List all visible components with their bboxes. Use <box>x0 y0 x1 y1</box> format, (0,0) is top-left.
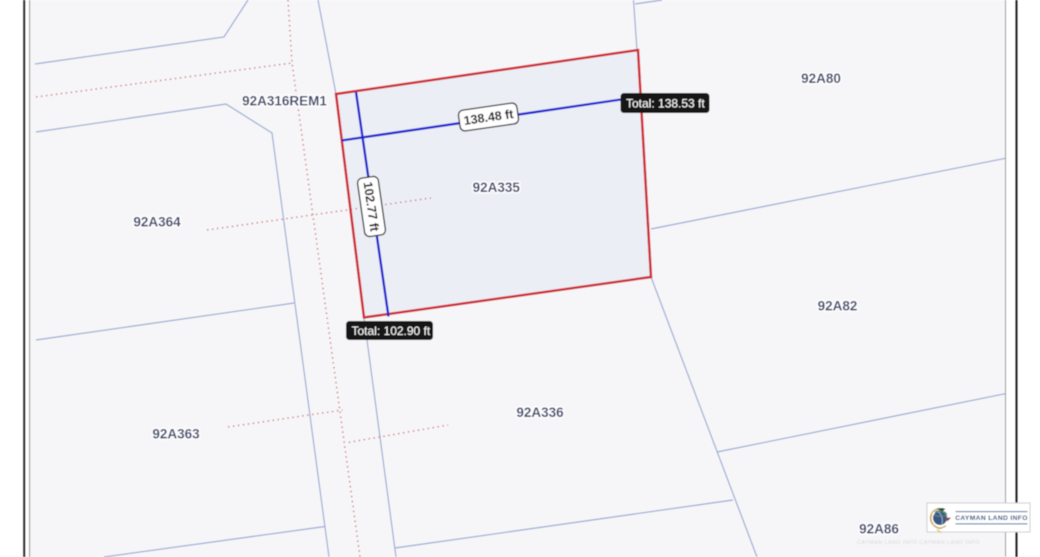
svg-text:92A364: 92A364 <box>133 215 181 230</box>
svg-text:92A316REM1: 92A316REM1 <box>242 94 327 109</box>
svg-text:92A80: 92A80 <box>801 71 841 86</box>
svg-text:92A363: 92A363 <box>152 427 200 442</box>
svg-text:92A86: 92A86 <box>859 522 899 537</box>
svg-text:CAYMAN LAND INFO CAYMAN LAND I: CAYMAN LAND INFO CAYMAN LAND INFO <box>857 540 980 546</box>
svg-text:92A335: 92A335 <box>473 180 521 195</box>
svg-text:92A82: 92A82 <box>818 299 858 314</box>
svg-text:92A336: 92A336 <box>516 405 564 420</box>
svg-text:CAYMAN LAND INFO: CAYMAN LAND INFO <box>955 515 1028 522</box>
svg-text:Total: 102.90 ft: Total: 102.90 ft <box>352 324 431 338</box>
svg-text:Total: 138.53 ft: Total: 138.53 ft <box>626 96 705 110</box>
